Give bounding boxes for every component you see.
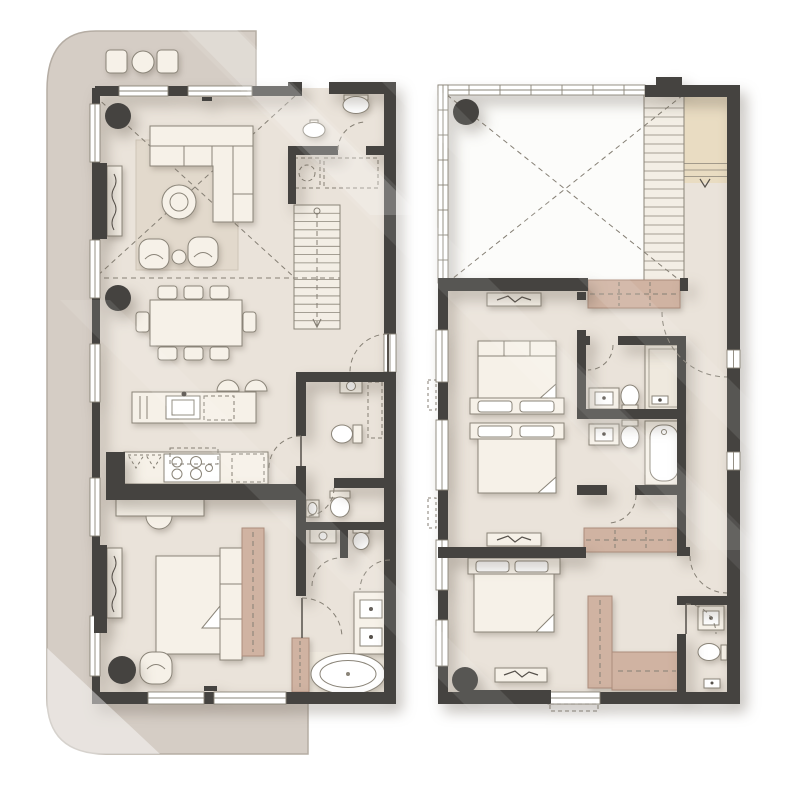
- bed1-pillow: [478, 401, 512, 412]
- wall: [577, 292, 586, 300]
- scale-mark: [202, 97, 212, 101]
- dining-table: [150, 300, 242, 346]
- wall: [340, 530, 348, 558]
- wall: [125, 484, 296, 500]
- window: [548, 692, 600, 704]
- wall-notch: [656, 77, 682, 85]
- tv-console-bed3: [495, 668, 547, 682]
- floor-plan-page: [0, 0, 800, 800]
- double-height-void: [447, 95, 644, 283]
- toilet-room-sink-basin: [308, 503, 317, 515]
- media-wall-bed3: [467, 690, 551, 704]
- wall: [677, 547, 690, 556]
- wall: [296, 478, 306, 488]
- tv-console-bed1: [487, 293, 541, 306]
- window: [436, 420, 448, 490]
- wall: [296, 372, 306, 436]
- bedroom-chair: [140, 652, 172, 684]
- bath2-faucet: [602, 432, 606, 436]
- wall: [334, 478, 396, 488]
- wall: [366, 146, 384, 155]
- dining-chair: [158, 286, 177, 299]
- glass-wall-left: [438, 85, 448, 283]
- wall: [635, 485, 683, 495]
- bath3-toilet-tank: [721, 645, 727, 660]
- bath2-toilet-tank: [622, 420, 638, 426]
- bed2-mattress: [478, 439, 556, 493]
- wall: [577, 409, 683, 419]
- window: [727, 350, 740, 368]
- bedroom-wardrobe: [242, 528, 264, 656]
- stair-landing: [684, 93, 727, 157]
- toilet-room-toilet: [331, 497, 350, 517]
- window: [148, 692, 204, 704]
- bedroom-desk: [116, 498, 204, 516]
- bed-mattress: [156, 556, 220, 654]
- glass-wall-top: [438, 85, 645, 95]
- wall: [438, 278, 588, 291]
- column: [453, 99, 479, 125]
- bed3-pillow: [476, 561, 509, 572]
- wc-toilet: [332, 425, 353, 443]
- window: [90, 104, 100, 162]
- vanity-faucet: [369, 607, 373, 611]
- coffee-table: [162, 185, 196, 219]
- terrace-table: [132, 51, 154, 73]
- dining-chair: [158, 347, 177, 360]
- wall: [677, 336, 686, 495]
- bed2-pillow: [478, 426, 512, 437]
- column: [105, 285, 131, 311]
- dining-chair: [136, 312, 149, 332]
- window: [436, 330, 448, 382]
- column: [452, 667, 478, 693]
- terrace-chair: [157, 50, 178, 73]
- bath1-faucet: [602, 396, 606, 400]
- bed3-mattress: [474, 574, 554, 632]
- wall: [288, 82, 302, 94]
- wall: [680, 278, 688, 291]
- media-wall-living: [94, 163, 107, 239]
- media-wall-bedroom: [94, 545, 107, 621]
- window: [727, 452, 740, 470]
- dining-chair: [184, 347, 203, 360]
- dining-chair: [184, 286, 203, 299]
- floor-plan-canvas: [0, 0, 800, 800]
- dining-chair: [210, 286, 229, 299]
- bathtub-inner: [650, 425, 678, 481]
- dining-chair: [210, 347, 229, 360]
- tv-console-bed2: [487, 533, 541, 546]
- bed-headboard: [220, 548, 242, 660]
- entry-door-opening: [384, 334, 396, 372]
- wall: [677, 634, 686, 692]
- bath2-toilet: [621, 426, 639, 448]
- wall: [296, 522, 396, 530]
- bed3-pillow: [515, 561, 548, 572]
- wc-toilet-tank: [353, 425, 362, 443]
- bath-toilet: [353, 533, 369, 550]
- wall: [438, 547, 586, 558]
- bed2-pillow: [520, 426, 554, 437]
- shower-head: [658, 398, 662, 402]
- powder-toilet: [343, 97, 369, 114]
- scale-mark: [204, 686, 217, 691]
- wall: [384, 82, 396, 334]
- layer-tfurn: [106, 50, 178, 73]
- window: [119, 86, 168, 96]
- bed1-mattress: [478, 356, 556, 400]
- wall: [296, 488, 306, 596]
- terrace-chair: [106, 50, 127, 73]
- wall: [727, 85, 740, 704]
- media-shelf-bedroom: [107, 548, 122, 618]
- island-faucet: [182, 392, 187, 397]
- wall: [168, 86, 188, 96]
- window: [90, 478, 100, 536]
- wall: [384, 372, 396, 704]
- bed1-pillow: [520, 401, 554, 412]
- tub-drain: [346, 672, 350, 676]
- wall: [577, 336, 590, 345]
- window: [188, 86, 252, 96]
- island-sink: [166, 396, 200, 419]
- media-shelf-living: [107, 166, 122, 236]
- bath1-toilet: [621, 385, 639, 407]
- wall: [296, 372, 384, 382]
- window: [436, 620, 448, 666]
- wall: [645, 85, 740, 97]
- wall: [288, 146, 296, 204]
- wall: [677, 495, 686, 547]
- wall: [577, 485, 607, 495]
- wall: [106, 452, 125, 500]
- dining-chair: [243, 312, 256, 332]
- window: [90, 344, 100, 402]
- vanity-faucet: [369, 635, 373, 639]
- bed1-foot-bench: [478, 341, 556, 356]
- wall: [677, 596, 727, 605]
- window: [90, 240, 100, 298]
- window: [214, 692, 286, 704]
- powder-sink: [303, 123, 325, 138]
- wall: [618, 336, 683, 345]
- side-table: [172, 250, 186, 264]
- bath-vanity-basin: [319, 532, 327, 540]
- column: [105, 103, 131, 129]
- bath3-fixture-dot: [711, 682, 714, 685]
- bath3-toilet: [698, 644, 720, 661]
- column: [108, 656, 136, 684]
- wc-sink-basin: [347, 382, 356, 391]
